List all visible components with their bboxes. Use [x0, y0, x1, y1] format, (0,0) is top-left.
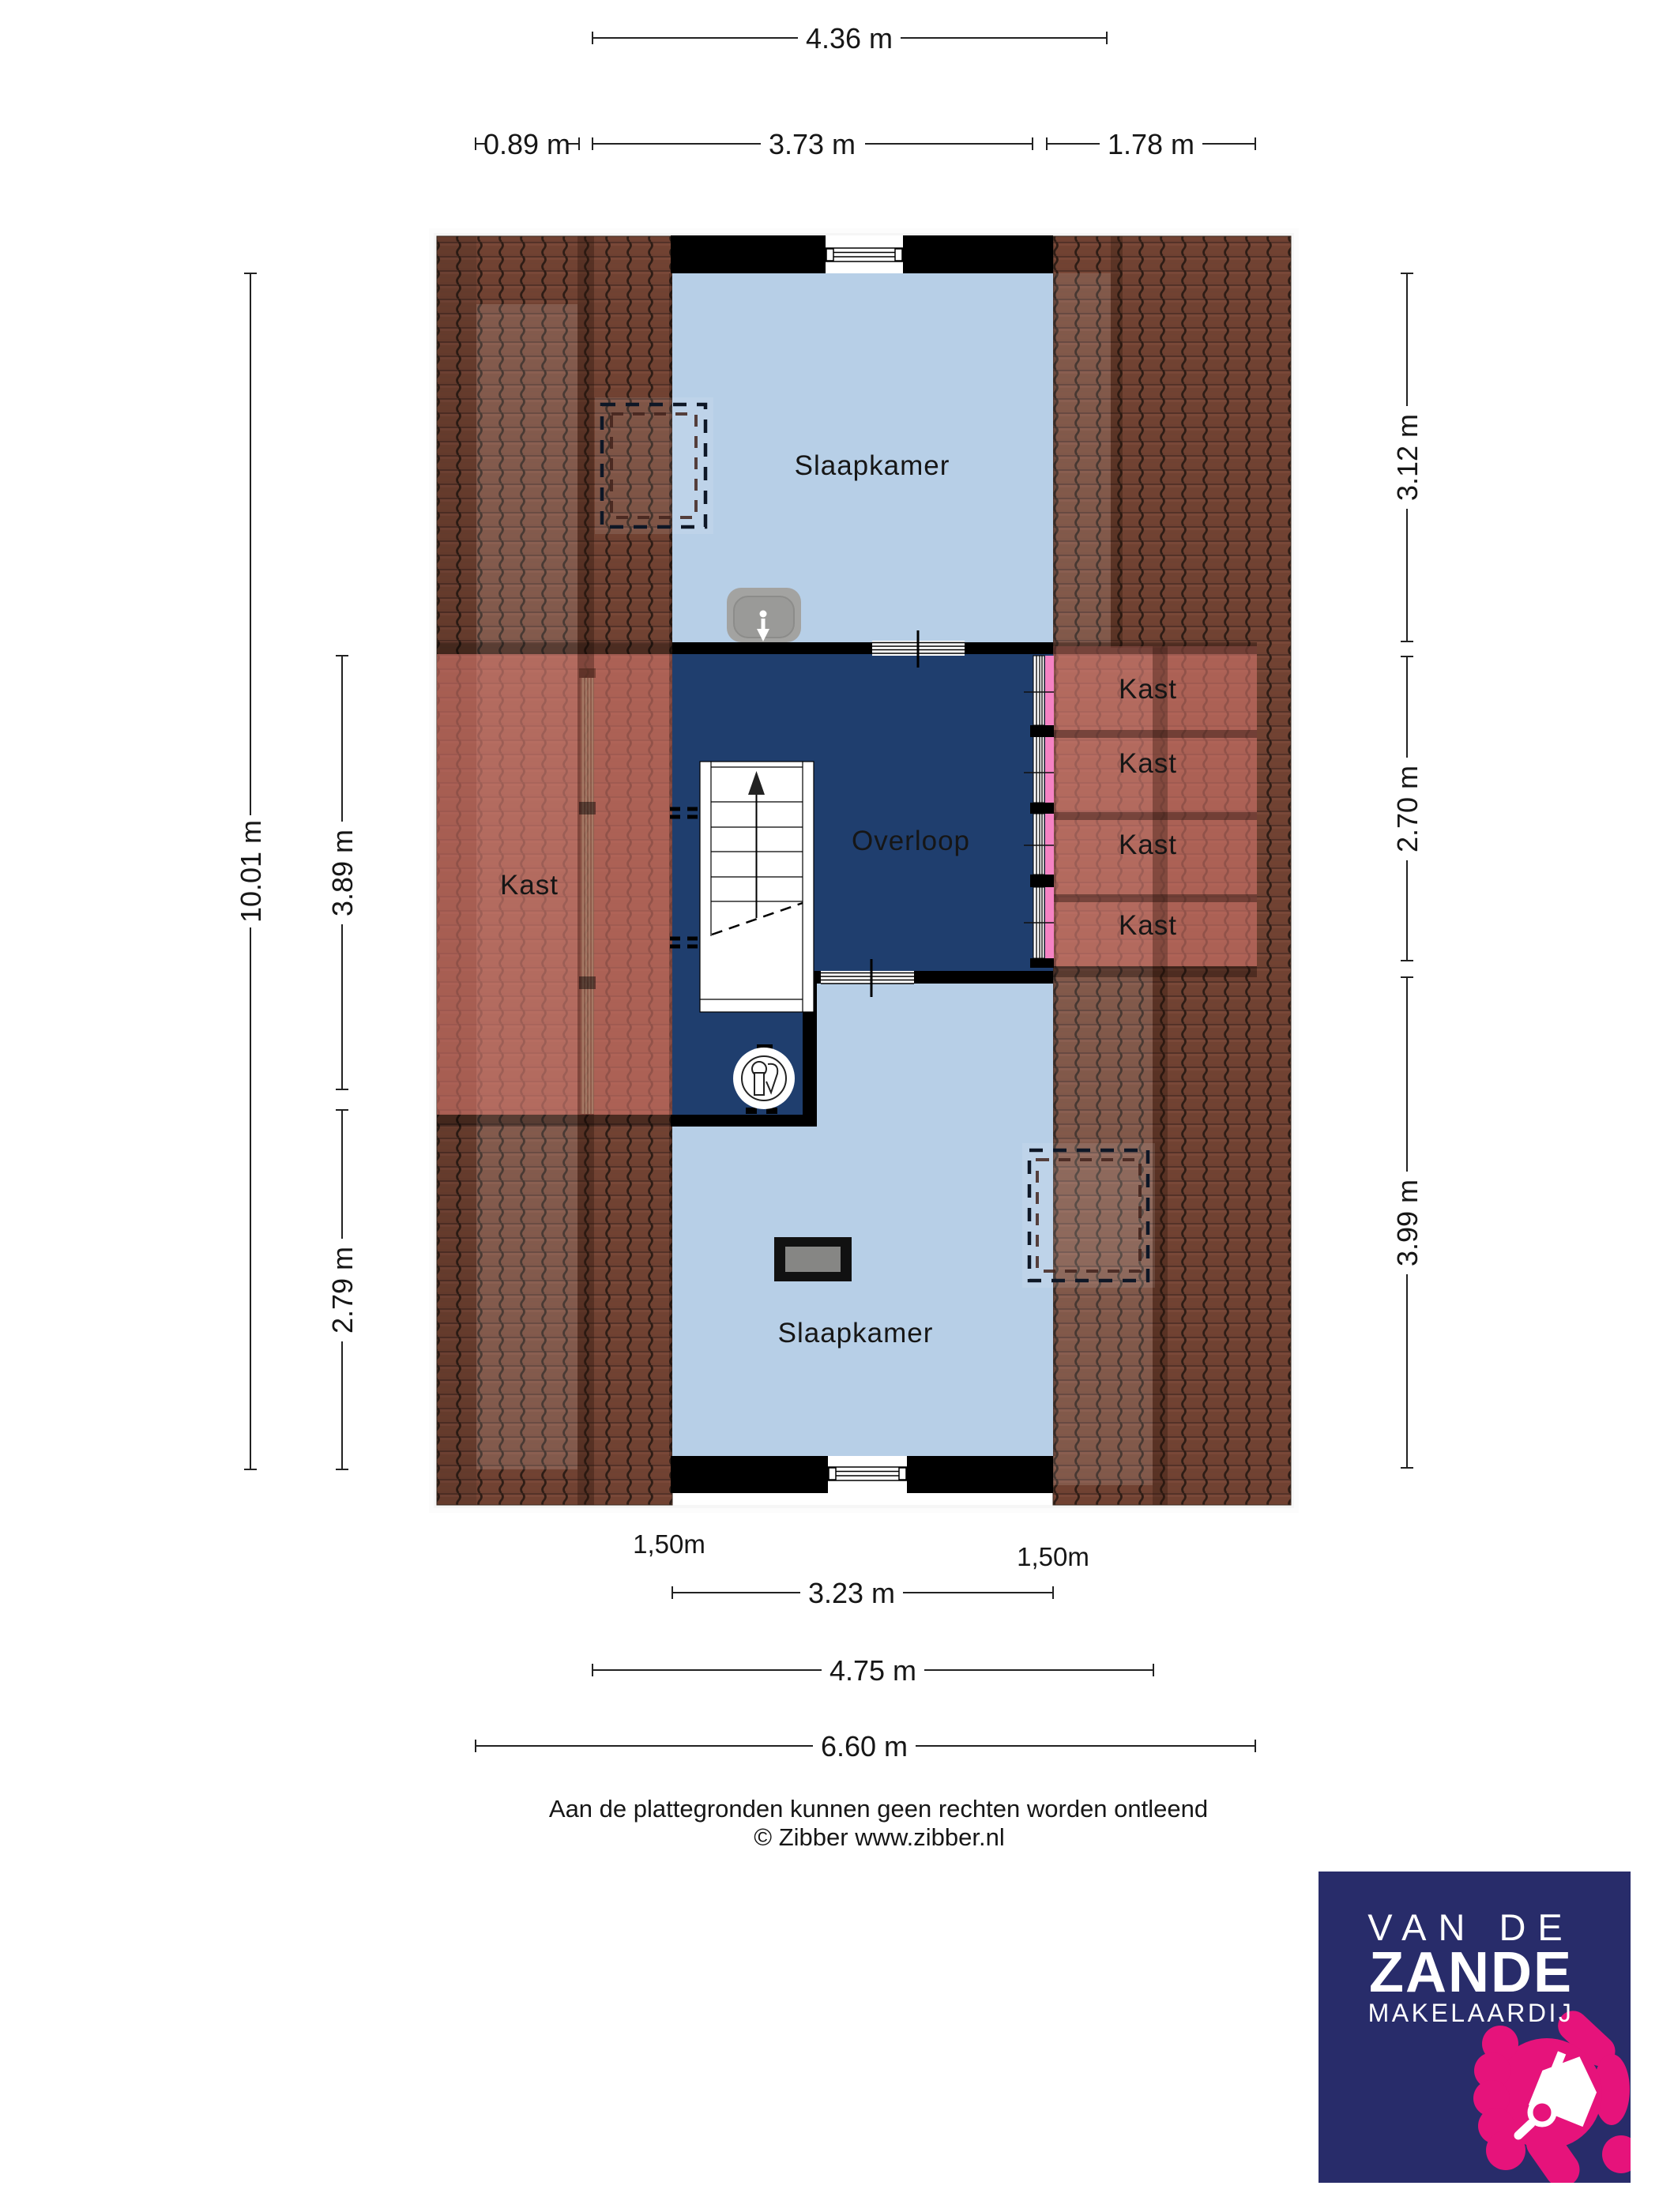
svg-text:2.70 m: 2.70 m [1391, 766, 1424, 852]
svg-text:4.75 m: 4.75 m [829, 1654, 916, 1687]
svg-text:1.78 m: 1.78 m [1108, 128, 1194, 160]
svg-text:Kast: Kast [1119, 748, 1177, 779]
svg-text:3.23 m: 3.23 m [808, 1577, 895, 1609]
svg-text:MAKELAARDIJ: MAKELAARDIJ [1368, 1999, 1574, 2027]
svg-text:Kast: Kast [500, 870, 559, 901]
svg-text:1,50m: 1,50m [633, 1529, 705, 1559]
svg-text:3.99 m: 3.99 m [1391, 1179, 1424, 1266]
svg-text:Kast: Kast [1119, 829, 1177, 860]
svg-text:© Zibber www.zibber.nl: © Zibber www.zibber.nl [754, 1823, 1004, 1851]
svg-text:Kast: Kast [1119, 910, 1177, 941]
svg-text:1,50m: 1,50m [1017, 1542, 1089, 1571]
svg-text:Overloop: Overloop [852, 826, 970, 856]
svg-text:0.89 m: 0.89 m [483, 128, 570, 160]
svg-text:Aan de plattegronden kunnen ge: Aan de plattegronden kunnen geen rechten… [549, 1795, 1208, 1823]
svg-text:2.79 m: 2.79 m [326, 1247, 359, 1334]
svg-text:Slaapkamer: Slaapkamer [778, 1318, 934, 1349]
svg-text:Slaapkamer: Slaapkamer [795, 450, 950, 481]
svg-text:10.01 m: 10.01 m [235, 820, 267, 923]
svg-text:3.73 m: 3.73 m [769, 128, 856, 160]
svg-text:6.60 m: 6.60 m [821, 1730, 908, 1762]
svg-text:ZANDE: ZANDE [1369, 1941, 1573, 2004]
svg-text:Kast: Kast [1119, 674, 1177, 705]
svg-text:3.89 m: 3.89 m [326, 829, 359, 916]
svg-text:4.36 m: 4.36 m [806, 22, 893, 55]
svg-text:3.12 m: 3.12 m [1391, 414, 1424, 501]
